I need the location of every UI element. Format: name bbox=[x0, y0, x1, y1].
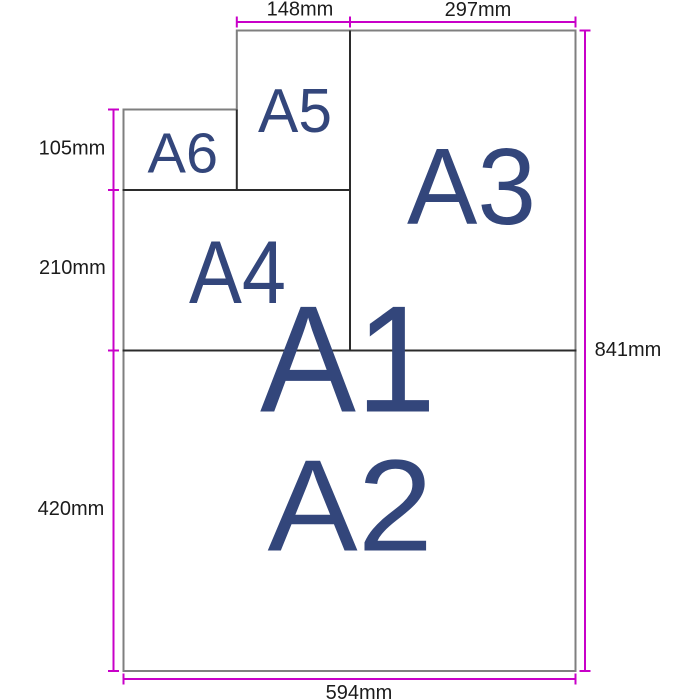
svg-text:A1: A1 bbox=[260, 275, 436, 445]
svg-text:A5: A5 bbox=[258, 76, 332, 146]
svg-text:148mm: 148mm bbox=[267, 0, 334, 21]
svg-text:297mm: 297mm bbox=[445, 0, 512, 21]
svg-text:A6: A6 bbox=[148, 122, 219, 185]
svg-text:420mm: 420mm bbox=[38, 498, 105, 520]
svg-text:105mm: 105mm bbox=[39, 138, 106, 160]
svg-text:210mm: 210mm bbox=[39, 257, 106, 279]
svg-text:841mm: 841mm bbox=[595, 339, 662, 361]
svg-text:A2: A2 bbox=[268, 433, 433, 579]
svg-text:A3: A3 bbox=[407, 126, 536, 248]
svg-text:594mm: 594mm bbox=[326, 682, 393, 700]
